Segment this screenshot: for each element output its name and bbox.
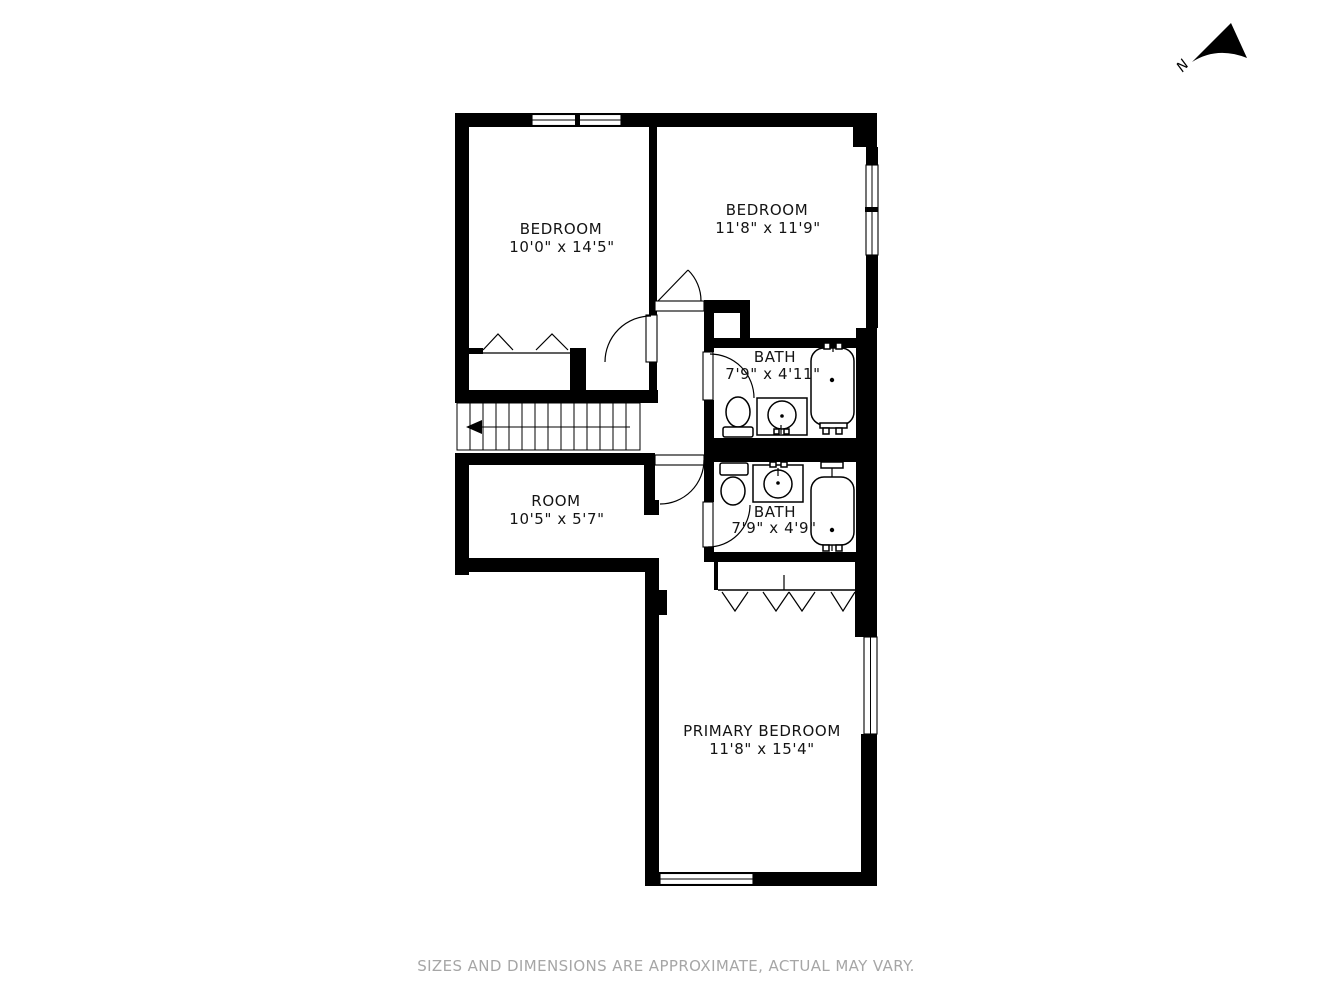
wall-left-upper <box>455 113 469 403</box>
door-bedroom1 <box>605 315 657 362</box>
wall-bath-upper-top <box>704 338 877 348</box>
door-bedroom2 <box>655 270 704 311</box>
door-swing-arc <box>660 460 704 504</box>
door-swing-arc <box>605 316 651 362</box>
primary-closet <box>718 575 855 611</box>
wall-closet1-left-post <box>469 348 483 354</box>
north-letter: N <box>1174 56 1193 75</box>
room-dims-room: 10'5" x 5'7" <box>509 510 604 528</box>
wall-top <box>455 113 877 127</box>
wall-hall-right-1 <box>704 313 714 352</box>
bedroom1-closet <box>483 334 570 353</box>
closet-door-chevron <box>483 334 513 350</box>
door-swing-arc <box>688 270 701 301</box>
wall-right-below-window2 <box>866 255 878 328</box>
closet-door-chevron <box>722 592 748 611</box>
closet-door-chevron <box>831 592 855 611</box>
wall-right-baths <box>856 328 877 562</box>
staircase <box>457 403 640 450</box>
room-label-room: ROOM <box>531 492 580 510</box>
bathtub-icon <box>811 340 854 434</box>
floor-plan-page: BEDROOM 10'0" x 14'5" BEDROOM 11'8" x 11… <box>0 0 1333 1000</box>
window-primary-bottom <box>660 874 753 885</box>
wall-bedroom-divider-upper <box>649 113 657 315</box>
room-label-primary: PRIMARY BEDROOM <box>683 722 841 740</box>
door-leaf <box>658 270 688 301</box>
room-label-bedroom1: BEDROOM <box>520 220 603 238</box>
stair-direction-arrow-icon <box>466 420 482 434</box>
wall-topright-corner <box>853 113 877 147</box>
toilet-icon <box>723 397 753 437</box>
window-bedroom1-top <box>532 113 621 127</box>
window-bedroom2-right <box>865 165 878 255</box>
wall-left-lower <box>455 453 469 575</box>
wall-room-right-bump <box>653 500 659 515</box>
door-hall-to-room <box>655 455 704 504</box>
wall-primary-left <box>645 558 659 886</box>
sink-icon <box>757 398 807 435</box>
wall-bedroom1-bottom <box>455 390 658 403</box>
wall-right-primary-lower <box>861 734 877 886</box>
wall-closet-primary-left <box>714 562 718 590</box>
floor-plan-svg: BEDROOM 10'0" x 14'5" BEDROOM 11'8" x 11… <box>0 0 1333 1000</box>
door-leaf <box>703 502 713 547</box>
north-arrow: N <box>1174 23 1247 75</box>
disclaimer-text: SIZES AND DIMENSIONS ARE APPROXIMATE, AC… <box>417 957 915 975</box>
closet-door-chevron <box>763 592 789 611</box>
door-leaf <box>646 315 657 362</box>
wall-between-baths <box>704 438 877 462</box>
wall-bath-lower-bottom <box>704 552 860 562</box>
window-primary-right <box>864 637 877 734</box>
door-threshold <box>655 301 704 311</box>
wall-right-above-window2 <box>866 147 878 165</box>
room-label-bedroom2: BEDROOM <box>726 201 809 219</box>
toilet-icon <box>720 463 748 505</box>
closet-door-chevron <box>536 334 568 350</box>
wall-right-closet <box>855 562 877 637</box>
bathtub-icon <box>811 462 854 551</box>
wall-room-top <box>455 453 655 465</box>
room-dims-bath-lower: 7'9" x 4'9" <box>731 519 816 537</box>
room-dims-bedroom2: 11'8" x 11'9" <box>715 219 821 237</box>
sink-icon <box>753 462 803 502</box>
wall-closet1-right <box>570 348 586 390</box>
north-arrow-icon <box>1192 23 1247 62</box>
closet-door-chevron <box>789 592 815 611</box>
room-dims-bath-upper: 7'9" x 4'11" <box>725 365 820 383</box>
room-dims-primary: 11'8" x 15'4" <box>709 740 815 758</box>
room-dims-bedroom1: 10'0" x 14'5" <box>509 238 615 256</box>
wall-room-bottom <box>455 558 650 572</box>
wall-primary-left-bump <box>659 590 667 615</box>
wall-bedroom2-bottom <box>704 300 750 313</box>
door-threshold <box>655 455 704 465</box>
room-label-bath-upper: BATH <box>754 348 796 366</box>
door-leaf <box>703 352 713 400</box>
wall-bedroom2-connector <box>740 313 750 338</box>
